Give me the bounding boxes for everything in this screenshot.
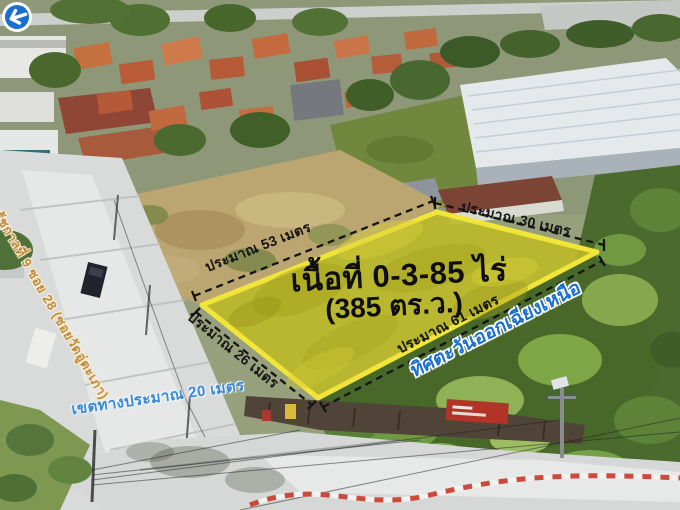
yellow-sign (285, 404, 296, 419)
small-red-sign (262, 410, 271, 421)
aerial-scene (0, 0, 680, 510)
aerial-photo: ประมาณ 53 เมตร ประมาณ 30 เมตร ประมาณ 26 … (0, 0, 680, 510)
